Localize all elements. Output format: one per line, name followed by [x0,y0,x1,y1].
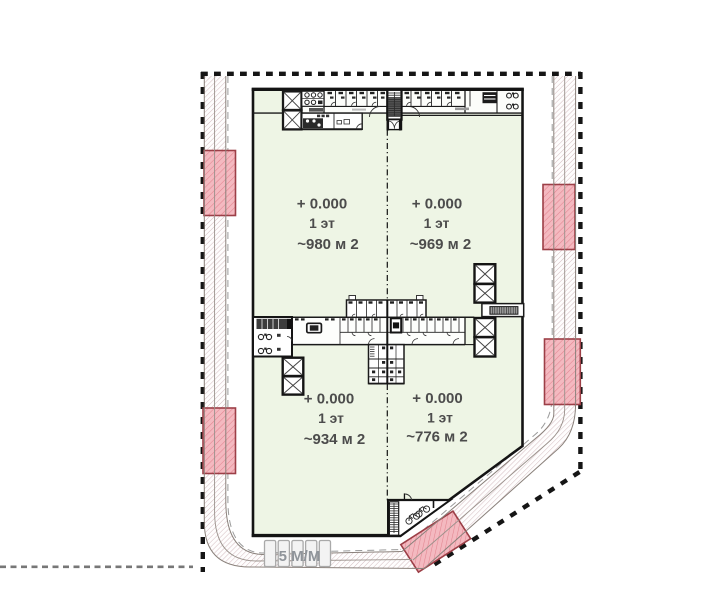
svg-text:1 эт: 1 эт [427,411,453,426]
svg-text:1 эт: 1 эт [318,411,344,426]
svg-text:~934 м 2: ~934 м 2 [304,431,366,448]
svg-text:~969 м 2: ~969 м 2 [410,236,472,253]
svg-text:5 М/М: 5 М/М [279,548,321,565]
svg-text:~980 м 2: ~980 м 2 [297,236,359,253]
svg-text:1 эт: 1 эт [424,216,450,231]
svg-text:1 эт: 1 эт [309,216,335,231]
svg-text:+ 0.000: + 0.000 [412,390,462,407]
svg-text:~776 м 2: ~776 м 2 [406,429,468,446]
svg-text:+ 0.000: + 0.000 [304,391,354,408]
svg-text:+ 0.000: + 0.000 [297,196,347,213]
svg-text:+ 0.000: + 0.000 [412,196,462,213]
